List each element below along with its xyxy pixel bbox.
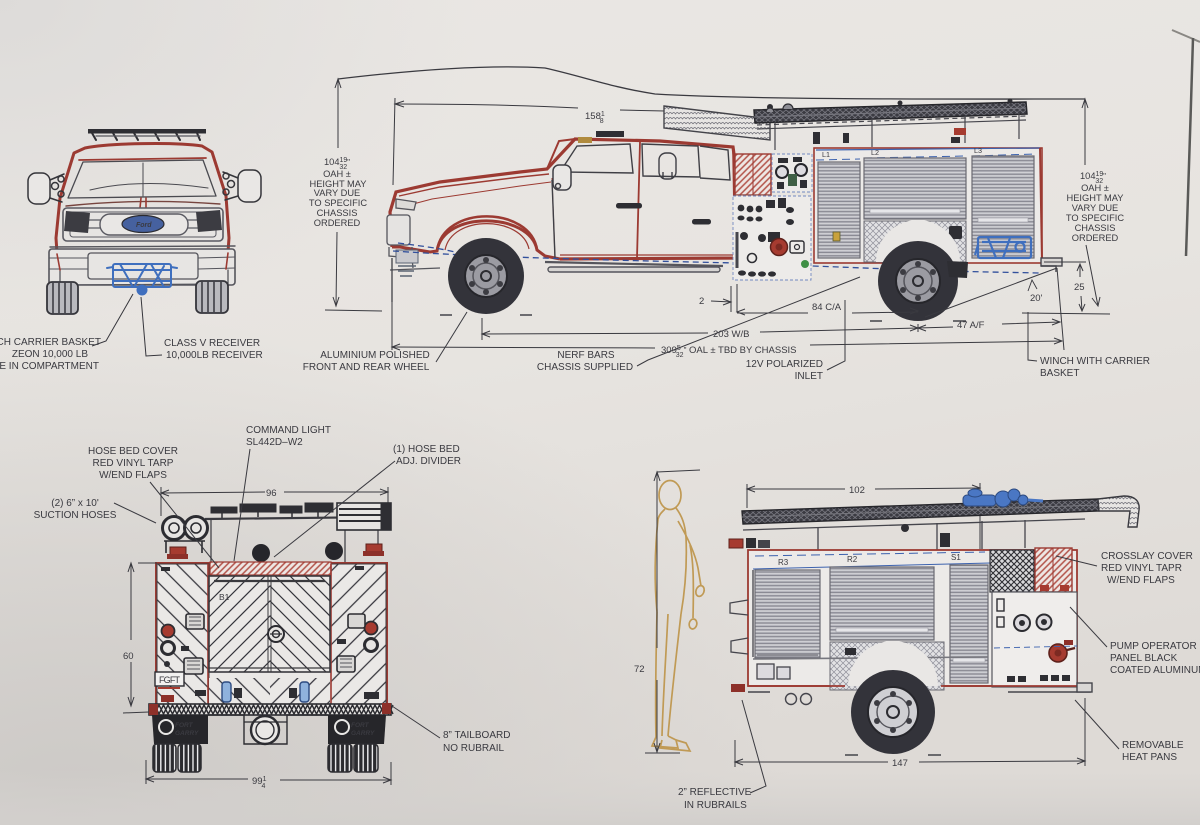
svg-text:CLASS V RECEIVER: CLASS V RECEIVER [164,338,260,349]
svg-text:2” REFLECTIVE: 2” REFLECTIVE [678,787,752,798]
svg-text:ZEON 10,000 LB: ZEON 10,000 LB [12,349,88,360]
svg-text:2: 2 [699,296,704,307]
svg-text:(2) 6” x 10': (2) 6” x 10' [51,498,99,509]
svg-text:47 A/F: 47 A/F [957,320,985,331]
svg-text:12V POLARIZED: 12V POLARIZED [746,359,823,370]
svg-text:96: 96 [266,488,277,499]
svg-text:HEIGHT MAY: HEIGHT MAY [1067,193,1124,203]
svg-text:FORT: FORT [175,722,194,729]
svg-text:GARRY: GARRY [351,730,375,737]
svg-text:CHASSIS SUPPLIED: CHASSIS SUPPLIED [537,362,633,373]
svg-text:WINCH WITH CARRIER: WINCH WITH CARRIER [1040,356,1150,367]
svg-text:OAH ±: OAH ± [323,169,351,179]
svg-text:HEAT PANS: HEAT PANS [1122,752,1177,763]
svg-text:FORT: FORT [351,722,370,729]
svg-text:NERF BARS: NERF BARS [557,350,615,361]
svg-text:COATED ALUMINUM: COATED ALUMINUM [1110,665,1200,676]
svg-text:10,000LB RECEIVER: 10,000LB RECEIVER [166,350,263,361]
svg-text:L1: L1 [822,150,830,159]
svg-text:SL442D–W2: SL442D–W2 [246,437,303,448]
svg-text:IN RUBRAILS: IN RUBRAILS [684,800,747,811]
svg-text:147: 147 [892,758,908,769]
svg-text:PUMP OPERATOR: PUMP OPERATOR [1110,641,1197,652]
svg-text:S1: S1 [951,553,961,562]
svg-text:84 C/A: 84 C/A [812,302,842,313]
svg-text:203 W/B: 203 W/B [713,329,749,340]
svg-text:20': 20' [1030,293,1043,304]
svg-text:VARY DUE: VARY DUE [314,188,361,198]
svg-text:CROSSLAY COVER: CROSSLAY COVER [1101,551,1193,562]
svg-text:BASKET: BASKET [1040,368,1079,379]
svg-text:FRONT AND REAR WHEEL: FRONT AND REAR WHEEL [303,362,430,373]
svg-text:STORE IN COMPARTMENT: STORE IN COMPARTMENT [0,361,99,372]
svg-text:SUCTION HOSES: SUCTION HOSES [34,510,117,521]
svg-text:WINCH CARRIER BASKET: WINCH CARRIER BASKET [0,337,101,348]
svg-text:ORDERED: ORDERED [1072,233,1119,243]
svg-text:60: 60 [123,651,134,662]
svg-text:Ford: Ford [136,222,152,229]
svg-text:NO RUBRAIL: NO RUBRAIL [443,743,505,754]
svg-text:(1) HOSE BED: (1) HOSE BED [393,444,460,455]
svg-text:RED VINYL TARP: RED VINYL TARP [93,458,174,469]
svg-text:L2: L2 [871,148,879,157]
svg-text:72: 72 [634,664,645,675]
svg-text:TO SPECIFIC: TO SPECIFIC [309,198,367,208]
svg-text:COMMAND LIGHT: COMMAND LIGHT [246,425,331,436]
svg-text:R2: R2 [847,555,858,564]
svg-text:INLET: INLET [795,371,823,382]
svg-text:OAH ±: OAH ± [1081,183,1109,193]
svg-text:L3: L3 [974,146,982,155]
svg-text:TO SPECIFIC: TO SPECIFIC [1066,213,1124,223]
svg-text:R3: R3 [778,558,789,567]
svg-text:102: 102 [849,485,865,496]
svg-text:8” TAILBOARD: 8” TAILBOARD [443,730,510,741]
svg-text:VARY DUE: VARY DUE [1072,203,1119,213]
svg-text:RED VINYL TAPR: RED VINYL TAPR [1101,563,1182,574]
svg-text:ORDERED: ORDERED [314,218,361,228]
svg-text:PANEL BLACK: PANEL BLACK [1110,653,1178,664]
svg-text:CHASSIS: CHASSIS [317,208,358,218]
svg-text:CHASSIS: CHASSIS [1075,223,1116,233]
svg-text:FGFT: FGFT [159,675,181,685]
svg-text:GARRY: GARRY [175,730,199,737]
svg-text:ADJ. DIVIDER: ADJ. DIVIDER [396,456,461,467]
svg-text:B1: B1 [219,592,230,602]
svg-text:W/END FLAPS: W/END FLAPS [1107,575,1175,586]
svg-text:HOSE BED COVER: HOSE BED COVER [88,446,178,457]
svg-text:W/END FLAPS: W/END FLAPS [99,470,167,481]
svg-text:ALUMINIUM POLISHED: ALUMINIUM POLISHED [320,350,429,361]
svg-text:25: 25 [1074,282,1085,293]
svg-text:REMOVABLE: REMOVABLE [1122,740,1184,751]
